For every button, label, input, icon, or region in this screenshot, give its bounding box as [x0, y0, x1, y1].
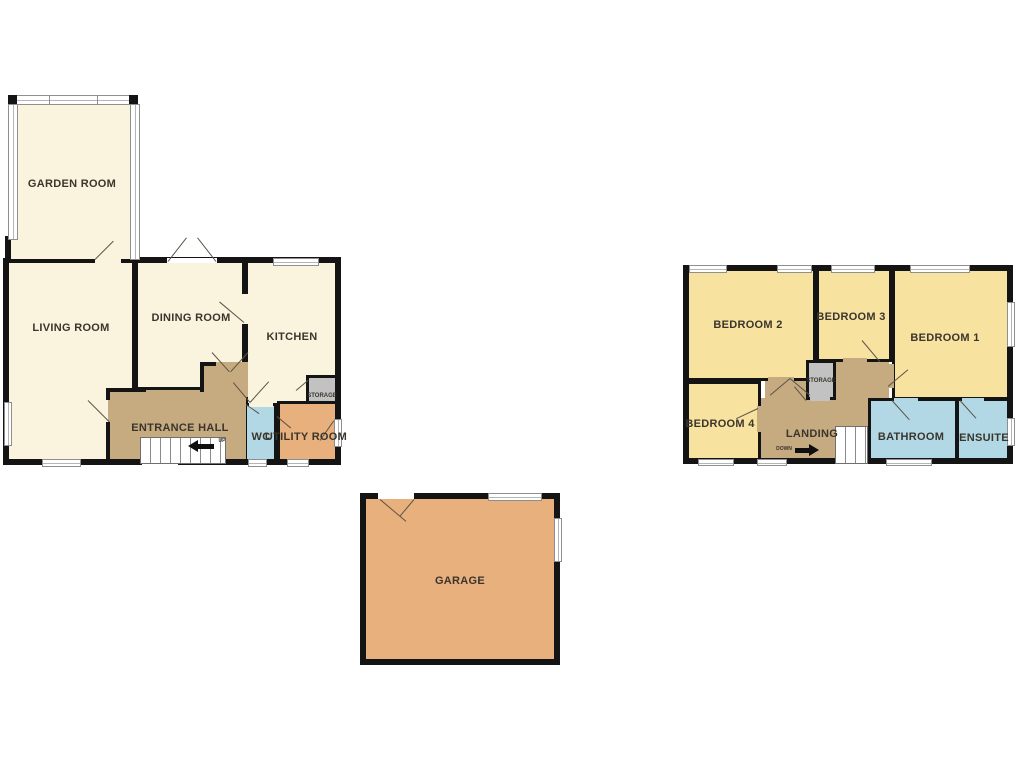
door-opening — [894, 398, 918, 403]
room-label-storage-ground: STORAGE — [307, 393, 337, 399]
window — [831, 265, 875, 273]
corner-post — [8, 95, 17, 104]
window — [49, 95, 99, 105]
french-door-opening — [167, 258, 217, 263]
window — [488, 493, 542, 501]
room-label-living: LIVING ROOM — [32, 322, 109, 334]
floorplan-page: { "colors": { "wall": "#141414", "text":… — [0, 0, 1024, 768]
corner-post — [129, 95, 138, 104]
window — [757, 459, 787, 466]
room-label-bedroom4: BEDROOM 4 — [685, 418, 754, 430]
window — [42, 459, 81, 467]
window — [4, 402, 12, 446]
room-label-bedroom3: BEDROOM 3 — [816, 311, 885, 323]
room-label-landing: LANDING — [786, 428, 838, 440]
garage-door-opening — [378, 493, 414, 499]
room-label-ensuite: ENSUITE — [959, 432, 1009, 444]
door-opening — [843, 358, 867, 364]
stairs-down — [835, 426, 868, 464]
door-opening — [810, 396, 830, 401]
window — [689, 265, 727, 273]
room-label-dining: DINING ROOM — [151, 312, 230, 324]
room-label-bedroom1: BEDROOM 1 — [910, 332, 979, 344]
wall-segment — [683, 265, 689, 464]
door-opening — [249, 401, 273, 407]
room-label-bedroom2: BEDROOM 2 — [713, 319, 782, 331]
window — [287, 459, 309, 467]
room-label-storage-first: STORAGE — [806, 378, 836, 384]
room-label-garden: GARDEN ROOM — [28, 178, 116, 190]
room-label-bathroom: BATHROOM — [878, 431, 944, 443]
window — [777, 265, 812, 273]
window — [698, 459, 734, 466]
door-opening — [95, 258, 121, 263]
wall-segment — [204, 362, 216, 366]
arrow-left-icon — [188, 440, 214, 452]
landing-upper — [836, 362, 889, 402]
window — [554, 518, 562, 562]
window — [886, 459, 932, 466]
stairs-down-label: DOWN — [776, 446, 792, 452]
stairs-up-label: UP — [219, 438, 226, 444]
window — [248, 459, 267, 467]
window — [97, 95, 131, 105]
wall-segment — [106, 422, 110, 464]
door-opening — [962, 398, 984, 403]
window — [273, 258, 319, 266]
wall-segment — [106, 388, 146, 392]
arrow-shaft — [198, 444, 214, 449]
door-opening — [757, 406, 763, 432]
window — [130, 104, 140, 260]
room-label-garage: GARAGE — [435, 575, 485, 587]
window — [1007, 302, 1015, 347]
room-label-kitchen: KITCHEN — [267, 331, 318, 343]
room-label-hall: ENTRANCE HALL — [131, 422, 228, 434]
room-label-utility: UTILITY ROOM — [265, 431, 347, 443]
arrow-right-icon — [795, 444, 819, 456]
window — [8, 104, 18, 240]
wall-segment — [200, 362, 204, 392]
door-opening — [242, 294, 248, 324]
window — [16, 95, 51, 105]
arrow-shaft — [795, 448, 809, 453]
window — [910, 265, 970, 273]
ensuite — [956, 398, 1011, 464]
